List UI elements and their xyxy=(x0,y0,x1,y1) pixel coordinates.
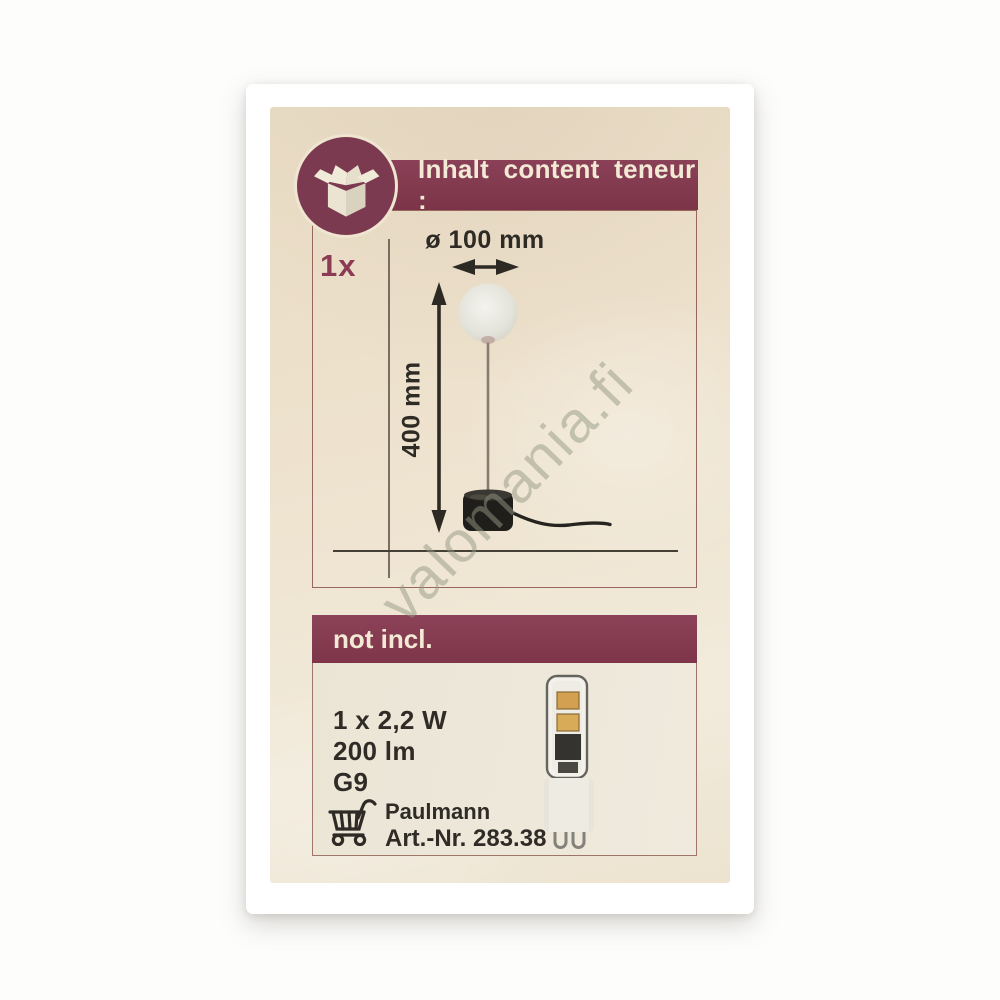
bulb-specs: 1 x 2,2 W 200 lm G9 xyxy=(333,705,447,798)
article-number-label: Art.-Nr. 283.38 xyxy=(385,825,546,853)
diameter-arrow xyxy=(452,259,519,275)
packaging-label: valomania.fi xyxy=(270,107,730,883)
brand-block: Paulmann Art.-Nr. 283.38 xyxy=(385,799,546,853)
box-icon-badge xyxy=(297,137,395,235)
height-arrow xyxy=(432,282,447,533)
g9-bulb-image xyxy=(543,672,595,861)
height-label: 400 mm xyxy=(398,362,427,458)
spec-line-lumen: 200 lm xyxy=(333,736,447,767)
brand-label: Paulmann xyxy=(385,799,546,825)
lamp-globe xyxy=(459,284,518,343)
diameter-label: ø 100 mm xyxy=(420,226,550,255)
open-box-icon xyxy=(311,154,381,218)
product-photo-card: valomania.fi xyxy=(246,84,754,914)
not-included-header-bar: not incl. xyxy=(312,615,697,663)
spec-line-socket: G9 xyxy=(333,767,447,798)
quantity-label: 1x xyxy=(320,248,356,284)
screenshot-viewport: valomania.fi xyxy=(0,0,1000,1000)
shopping-cart-icon xyxy=(327,798,377,851)
spec-line-wattage: 1 x 2,2 W xyxy=(333,705,447,736)
